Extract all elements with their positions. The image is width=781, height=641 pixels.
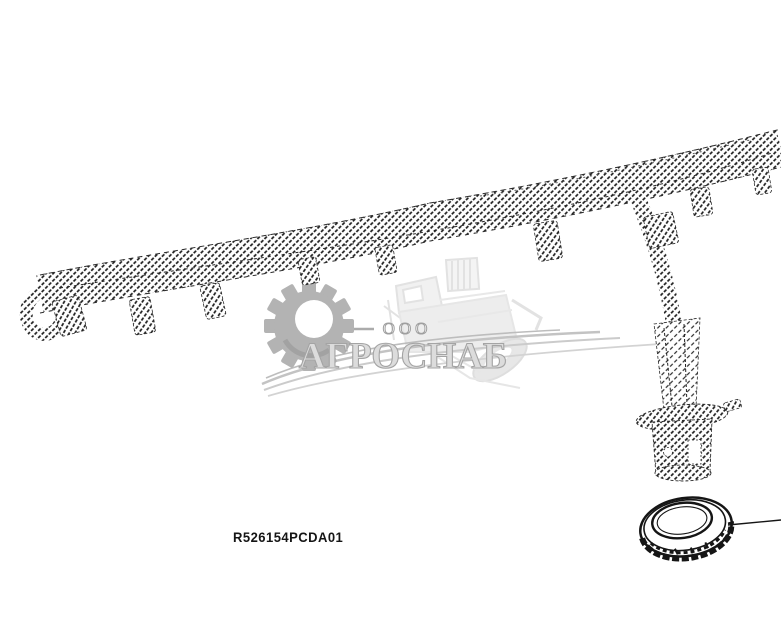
watermark-company-name: АГРОСНАБ xyxy=(299,336,508,377)
parts-diagram-page: ООО АГРОСНАБ xyxy=(0,0,781,641)
branch-connector-drawing xyxy=(635,194,742,481)
callout-leader-line xyxy=(728,520,781,525)
watermark: ООО АГРОСНАБ xyxy=(262,258,660,396)
part-number-label: R526154PCDA01 xyxy=(233,529,343,545)
grommet-seal-drawing xyxy=(636,492,735,564)
diagram-canvas: ООО АГРОСНАБ xyxy=(0,0,781,641)
